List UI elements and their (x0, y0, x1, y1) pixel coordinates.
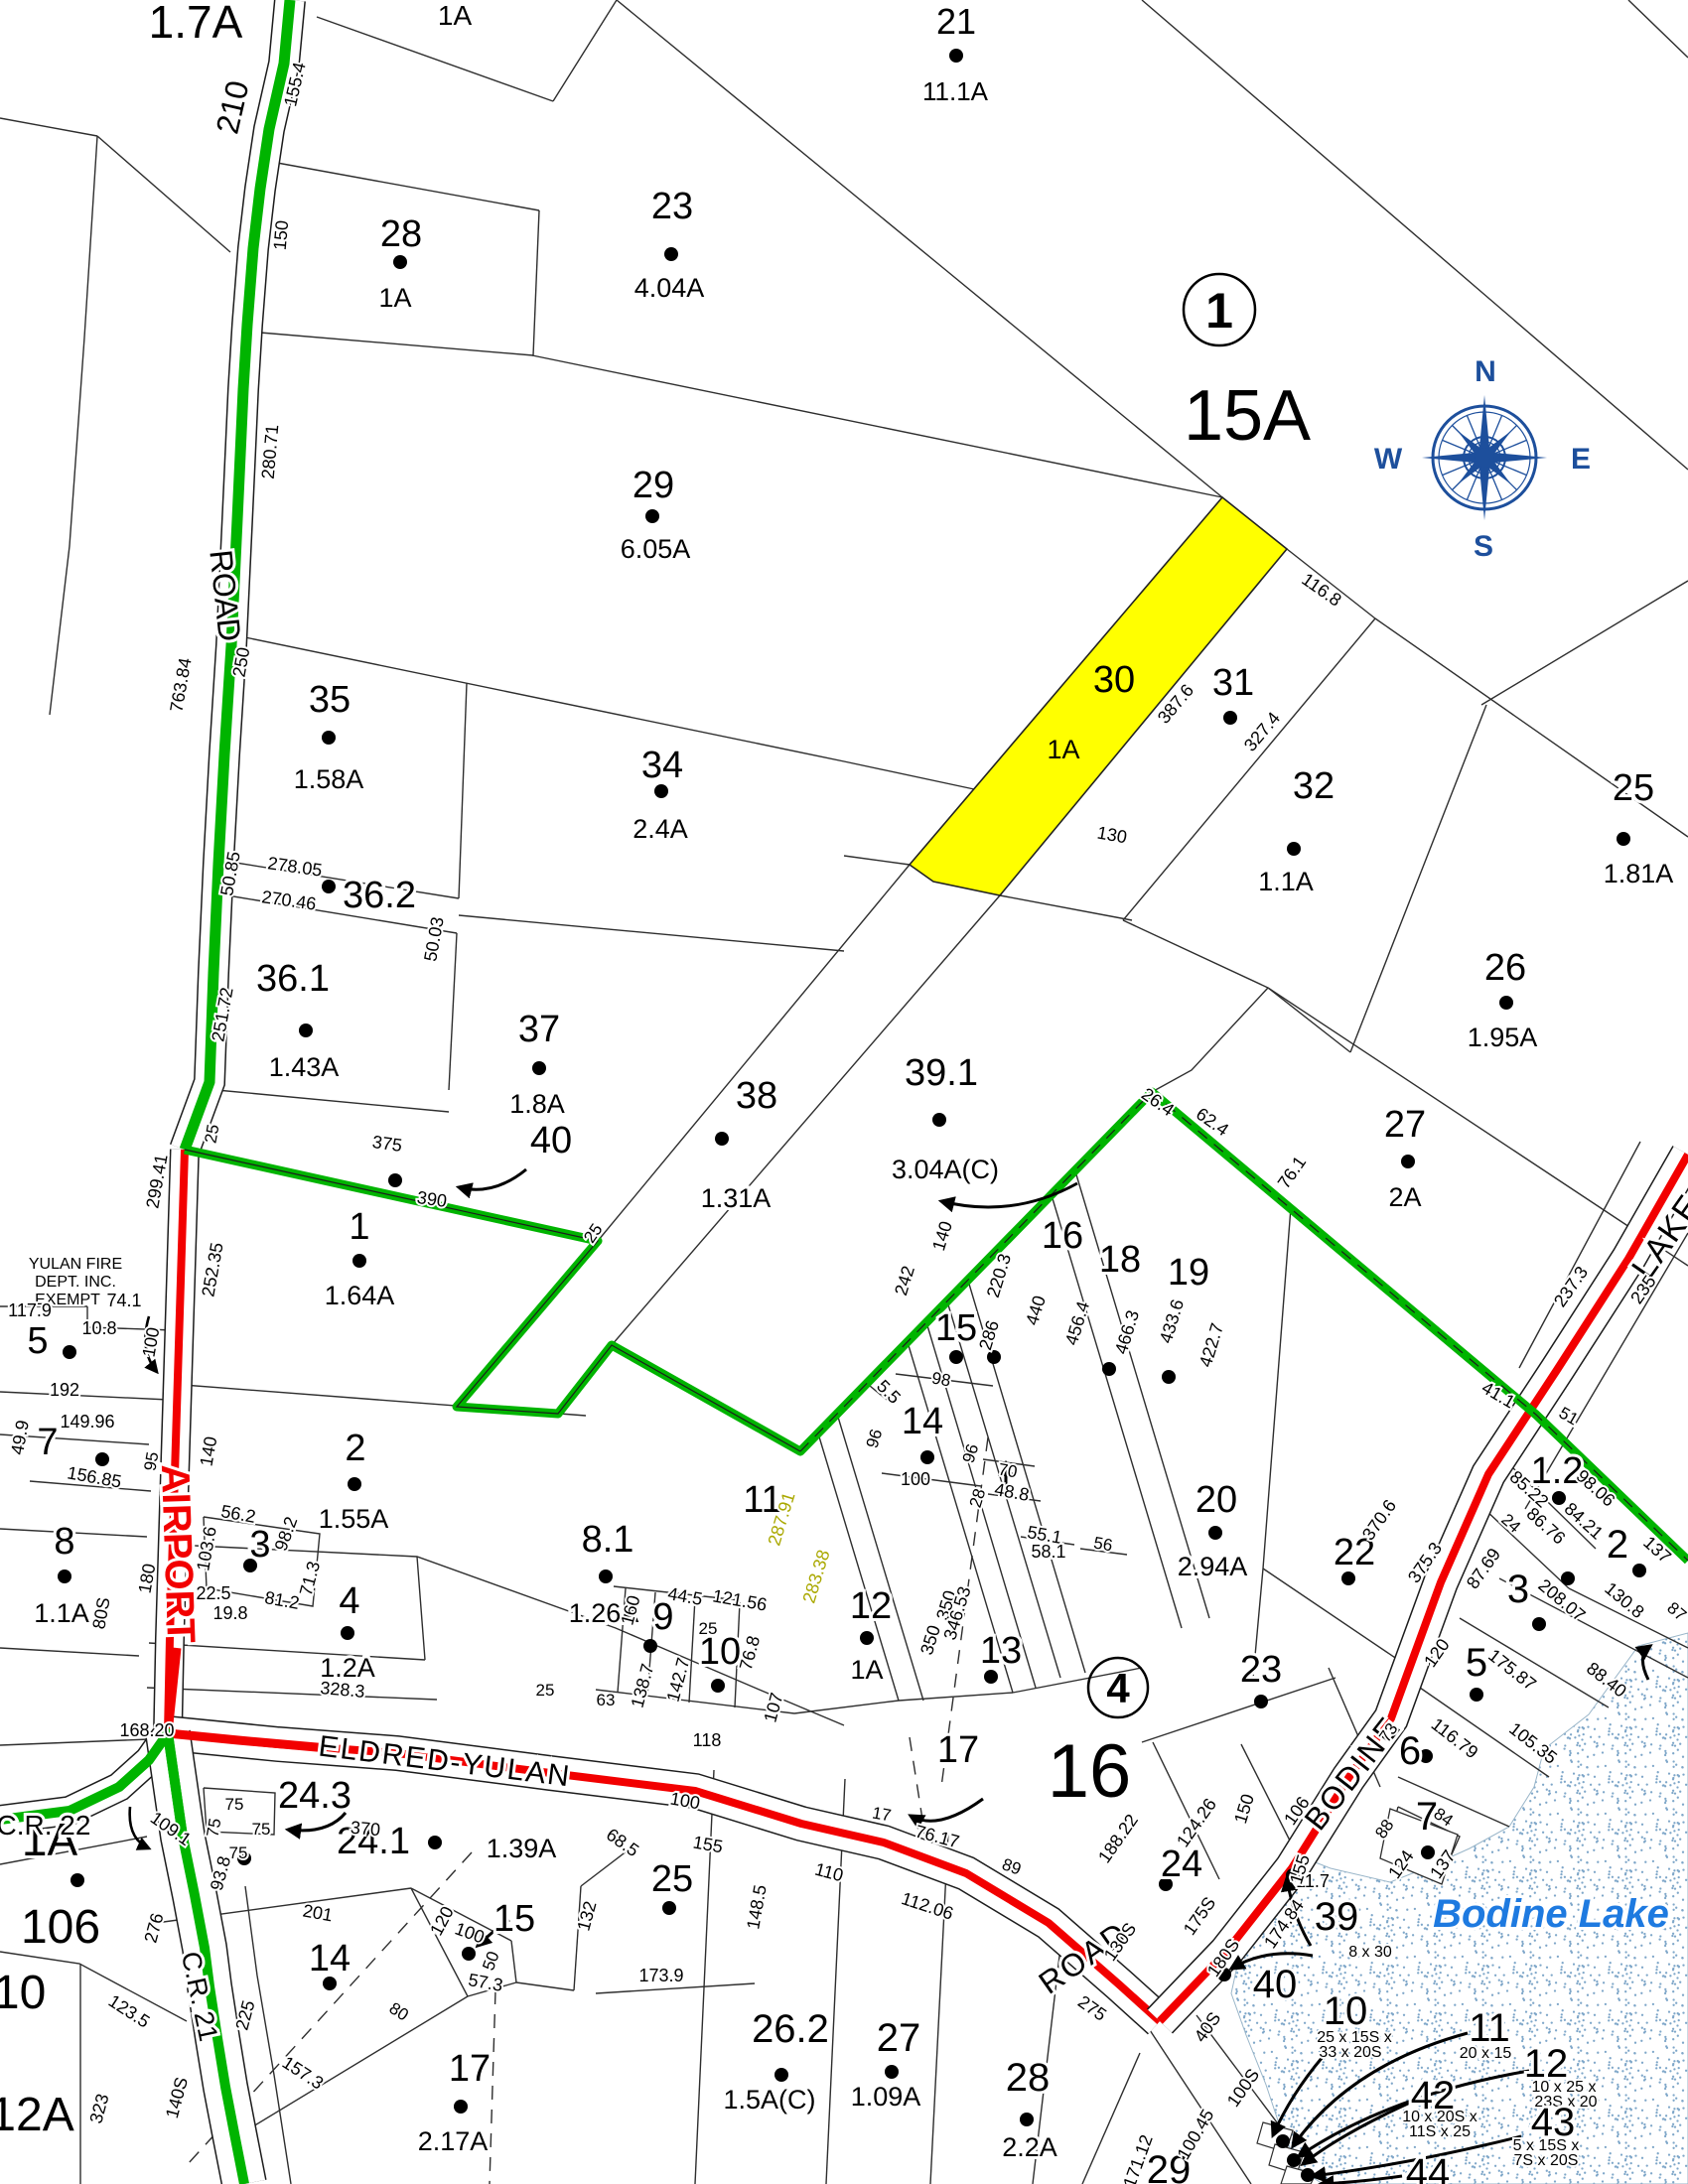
svg-text:29: 29 (633, 465, 674, 506)
svg-text:12A: 12A (0, 2089, 74, 2141)
svg-text:37: 37 (518, 1009, 560, 1050)
svg-text:15: 15 (935, 1307, 977, 1349)
svg-text:75: 75 (225, 1795, 244, 1814)
svg-text:31: 31 (1212, 662, 1254, 704)
svg-text:168.20: 168.20 (119, 1720, 174, 1740)
svg-text:2.94A: 2.94A (1178, 1552, 1248, 1581)
svg-text:70: 70 (997, 1459, 1019, 1481)
svg-text:E: E (1571, 443, 1591, 476)
svg-text:1A: 1A (438, 0, 473, 31)
svg-text:1.43A: 1.43A (269, 1052, 340, 1082)
svg-text:N: N (1475, 355, 1496, 388)
svg-text:12: 12 (850, 1585, 892, 1627)
svg-text:11.1A: 11.1A (922, 76, 989, 106)
svg-text:1.09A: 1.09A (851, 2082, 921, 2112)
svg-text:2.2A: 2.2A (1002, 2132, 1057, 2162)
svg-text:150: 150 (270, 219, 293, 251)
svg-text:16: 16 (1048, 1729, 1132, 1814)
svg-text:4: 4 (1106, 1665, 1130, 1711)
svg-text:1: 1 (349, 1206, 369, 1248)
svg-text:20 x 15: 20 x 15 (1460, 2045, 1512, 2062)
svg-text:1.7A: 1.7A (149, 0, 243, 48)
svg-text:39.1: 39.1 (905, 1052, 978, 1094)
svg-text:22.5: 22.5 (196, 1583, 230, 1603)
svg-text:375: 375 (371, 1132, 404, 1156)
svg-text:23: 23 (651, 186, 693, 227)
svg-text:27: 27 (1384, 1104, 1426, 1146)
svg-text:2.4A: 2.4A (633, 814, 688, 844)
svg-text:Bodine Lake: Bodine Lake (1433, 1892, 1669, 1936)
svg-text:117.9: 117.9 (8, 1300, 52, 1320)
svg-text:32: 32 (1293, 765, 1335, 807)
svg-text:173.9: 173.9 (638, 1966, 683, 1985)
svg-text:YULAN FIRE: YULAN FIRE (29, 1256, 122, 1273)
svg-text:25: 25 (536, 1681, 555, 1700)
svg-text:10.8: 10.8 (81, 1318, 116, 1338)
svg-text:8.1: 8.1 (582, 1519, 634, 1561)
svg-text:1A: 1A (850, 1655, 883, 1685)
svg-text:35: 35 (309, 679, 351, 721)
svg-text:40: 40 (530, 1120, 572, 1161)
svg-text:3: 3 (1507, 1568, 1529, 1611)
svg-text:95: 95 (140, 1450, 162, 1472)
svg-text:63: 63 (597, 1691, 616, 1709)
svg-text:7S x 20S: 7S x 20S (1514, 2152, 1579, 2169)
svg-text:11: 11 (1469, 2006, 1510, 2050)
svg-text:23: 23 (1240, 1649, 1282, 1691)
svg-text:24.3: 24.3 (278, 1775, 352, 1817)
svg-text:192: 192 (50, 1380, 79, 1400)
svg-text:75: 75 (203, 1817, 224, 1839)
svg-text:44: 44 (1406, 2151, 1451, 2184)
svg-text:1.58A: 1.58A (294, 764, 364, 794)
svg-text:14: 14 (902, 1401, 943, 1442)
svg-text:1A: 1A (378, 283, 411, 313)
svg-text:390: 390 (416, 1187, 449, 1211)
svg-text:W: W (1374, 443, 1403, 476)
svg-text:18: 18 (1099, 1239, 1141, 1281)
svg-text:1.64A: 1.64A (325, 1281, 395, 1310)
svg-text:56: 56 (1092, 1533, 1114, 1555)
svg-text:33 x 20S: 33 x 20S (1319, 2044, 1381, 2061)
svg-text:28: 28 (380, 213, 422, 255)
svg-text:25: 25 (201, 1123, 222, 1145)
svg-text:1.1A: 1.1A (1258, 867, 1314, 896)
svg-text:1: 1 (1205, 283, 1233, 339)
svg-text:36.1: 36.1 (256, 958, 330, 1000)
svg-text:2: 2 (1607, 1523, 1628, 1567)
svg-text:10: 10 (1324, 1989, 1368, 2033)
svg-text:C.R. 22: C.R. 22 (0, 1810, 90, 1841)
svg-text:34: 34 (641, 745, 683, 786)
svg-text:19.8: 19.8 (212, 1603, 247, 1623)
svg-text:17: 17 (871, 1803, 893, 1825)
svg-text:36.2: 36.2 (343, 875, 416, 916)
svg-text:17: 17 (449, 2048, 491, 2090)
svg-text:40: 40 (1253, 1963, 1298, 2006)
svg-text:1.31A: 1.31A (701, 1183, 772, 1213)
svg-text:26: 26 (1484, 947, 1526, 989)
svg-text:21: 21 (936, 1, 976, 42)
svg-text:2.17A: 2.17A (418, 2126, 489, 2156)
svg-text:1.5A(C): 1.5A(C) (723, 2085, 815, 2115)
svg-text:38: 38 (736, 1075, 777, 1117)
svg-text:20: 20 (1196, 1479, 1237, 1521)
svg-text:25: 25 (699, 1619, 718, 1638)
svg-text:75: 75 (252, 1820, 271, 1839)
svg-text:5: 5 (27, 1320, 48, 1362)
svg-text:25: 25 (651, 1858, 693, 1900)
svg-text:1.39A: 1.39A (487, 1834, 557, 1863)
svg-text:58.1: 58.1 (1031, 1542, 1065, 1562)
svg-text:27: 27 (877, 2016, 921, 2060)
svg-text:39: 39 (1315, 1895, 1359, 1939)
svg-text:3: 3 (249, 1524, 270, 1566)
svg-text:98: 98 (930, 1368, 952, 1390)
svg-text:2A: 2A (1388, 1182, 1421, 1212)
svg-text:2: 2 (345, 1428, 365, 1469)
svg-text:6.05A: 6.05A (621, 534, 691, 564)
svg-text:100: 100 (901, 1469, 930, 1489)
svg-text:16: 16 (1042, 1215, 1083, 1257)
svg-text:106: 106 (21, 1901, 100, 1954)
svg-text:149.96: 149.96 (60, 1412, 114, 1432)
svg-text:1.81A: 1.81A (1604, 859, 1674, 888)
svg-text:30: 30 (1093, 659, 1135, 701)
svg-text:S: S (1474, 530, 1493, 563)
svg-text:11S x 25: 11S x 25 (1409, 2123, 1471, 2140)
svg-text:1.1A: 1.1A (34, 1598, 89, 1628)
svg-text:1.8A: 1.8A (509, 1089, 565, 1119)
svg-text:14: 14 (309, 1938, 351, 1979)
svg-text:328.3: 328.3 (320, 1678, 366, 1702)
svg-text:24: 24 (1161, 1843, 1202, 1885)
svg-text:15A: 15A (1184, 376, 1311, 456)
svg-text:13: 13 (980, 1630, 1022, 1672)
svg-text:3.04A(C): 3.04A(C) (892, 1155, 999, 1184)
svg-text:370: 370 (350, 1818, 381, 1841)
svg-text:1A: 1A (1047, 735, 1079, 764)
svg-text:8: 8 (54, 1521, 74, 1563)
svg-text:4.04A: 4.04A (634, 273, 705, 303)
svg-text:15: 15 (493, 1898, 535, 1940)
svg-text:4: 4 (339, 1580, 359, 1622)
svg-text:26.2: 26.2 (752, 2007, 829, 2051)
svg-text:7: 7 (37, 1422, 58, 1463)
svg-text:5: 5 (1466, 1641, 1487, 1685)
svg-text:1.55A: 1.55A (319, 1504, 389, 1534)
svg-text:17: 17 (937, 1729, 979, 1771)
svg-text:25: 25 (1613, 767, 1654, 809)
svg-text:1.95A: 1.95A (1468, 1023, 1538, 1052)
svg-text:28: 28 (1006, 2056, 1051, 2100)
svg-text:110: 110 (0, 1967, 46, 2019)
svg-text:118: 118 (693, 1730, 722, 1750)
svg-text:74.1: 74.1 (106, 1291, 141, 1310)
svg-text:DEPT. INC.: DEPT. INC. (35, 1274, 116, 1291)
svg-text:19: 19 (1168, 1252, 1209, 1294)
svg-text:8 x 30: 8 x 30 (1348, 1944, 1392, 1961)
